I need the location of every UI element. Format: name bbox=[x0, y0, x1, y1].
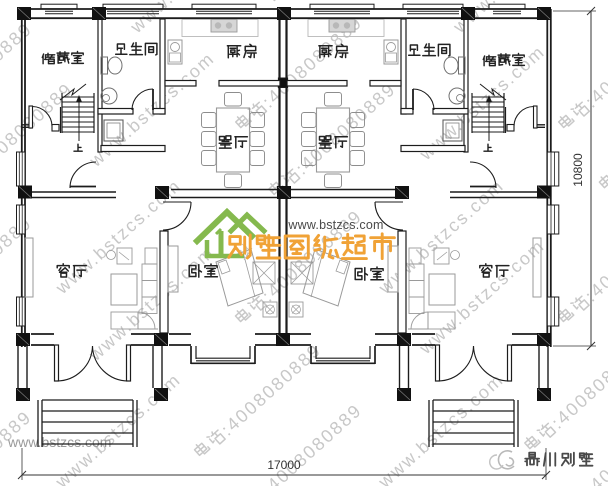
svg-text:www.bstzcs.com: www.bstzcs.com bbox=[7, 434, 111, 450]
svg-text:10800: 10800 bbox=[571, 153, 585, 187]
svg-text:17000: 17000 bbox=[267, 458, 301, 472]
svg-text:www.bstzcs.com: www.bstzcs.com bbox=[287, 218, 383, 232]
